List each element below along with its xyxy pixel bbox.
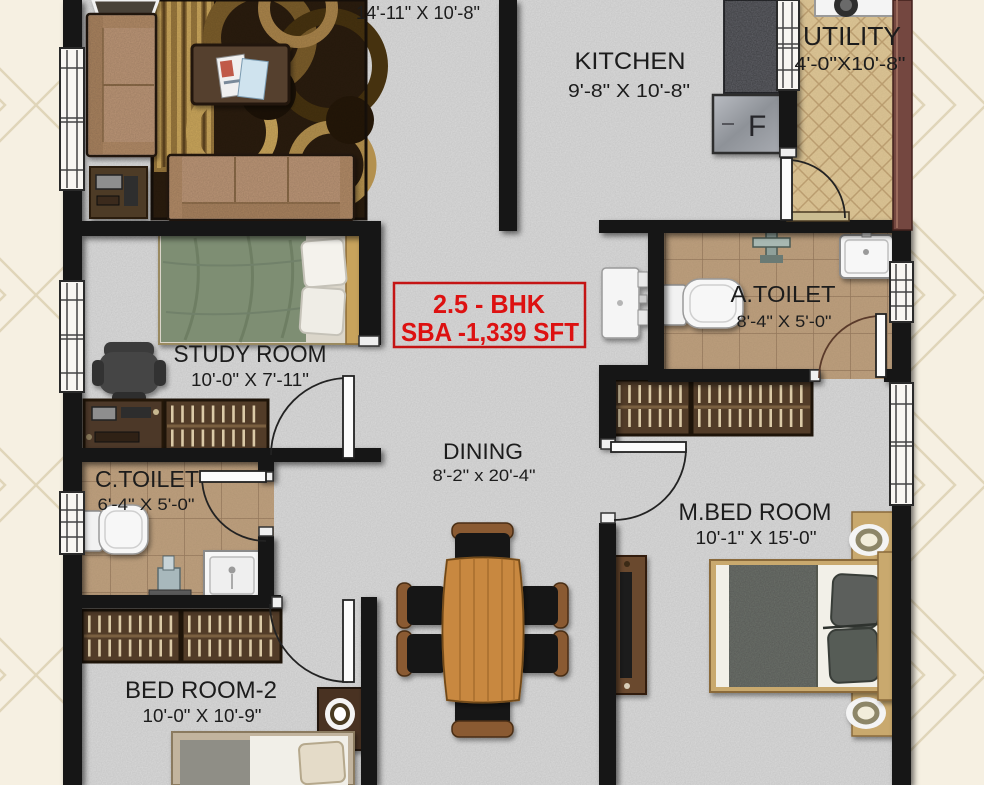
svg-text:10'-0" X 7'-11": 10'-0" X 7'-11" bbox=[191, 370, 309, 390]
svg-text:6'-4" X 5'-0": 6'-4" X 5'-0" bbox=[98, 495, 195, 514]
svg-text:4'-0"X10'-8": 4'-0"X10'-8" bbox=[795, 54, 906, 74]
svg-text:10'-1" X 15'-0": 10'-1" X 15'-0" bbox=[696, 528, 817, 548]
svg-text:2.5 - BHK: 2.5 - BHK bbox=[433, 289, 545, 319]
svg-text:STUDY ROOM: STUDY ROOM bbox=[174, 341, 327, 368]
svg-text:F: F bbox=[748, 110, 766, 143]
svg-text:BED ROOM-2: BED ROOM-2 bbox=[125, 677, 277, 704]
svg-text:C.TOILET: C.TOILET bbox=[95, 466, 199, 492]
svg-text:14'-11" X 10'-8": 14'-11" X 10'-8" bbox=[356, 3, 480, 23]
svg-text:DINING: DINING bbox=[443, 439, 523, 464]
svg-text:SBA -1,339 SFT: SBA -1,339 SFT bbox=[401, 317, 579, 347]
svg-text:KITCHEN: KITCHEN bbox=[575, 48, 686, 75]
svg-text:8'-2" x 20'-4": 8'-2" x 20'-4" bbox=[433, 466, 536, 485]
svg-text:9'-8" X 10'-8": 9'-8" X 10'-8" bbox=[568, 81, 690, 101]
svg-text:10'-0" X 10'-9": 10'-0" X 10'-9" bbox=[143, 706, 262, 726]
svg-text:A.TOILET: A.TOILET bbox=[731, 281, 836, 307]
svg-text:M.BED ROOM: M.BED ROOM bbox=[679, 499, 832, 526]
svg-text:8'-4" X 5'-0": 8'-4" X 5'-0" bbox=[737, 312, 832, 331]
svg-text:UTILITY: UTILITY bbox=[803, 21, 901, 51]
